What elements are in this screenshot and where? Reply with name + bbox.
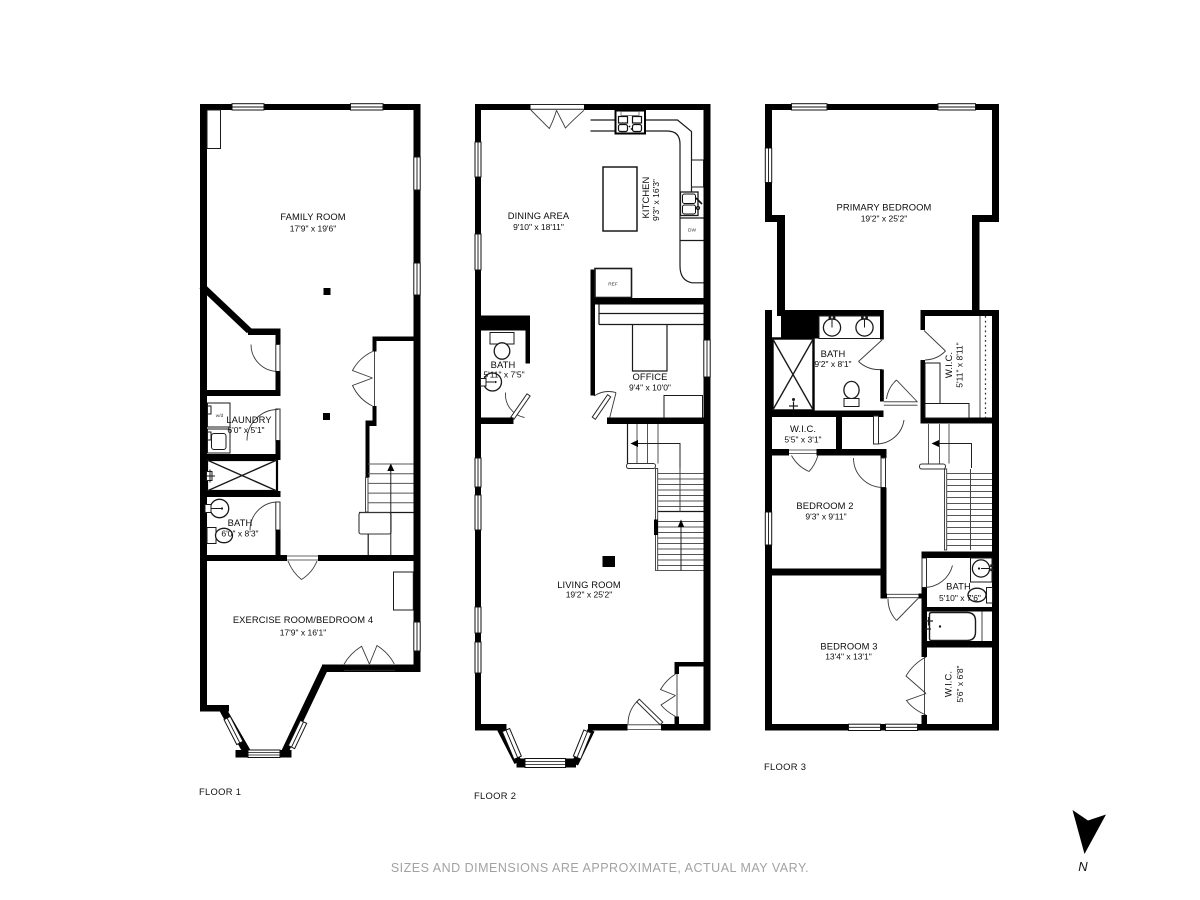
svg-text:EXERCISE ROOM/BEDROOM 4: EXERCISE ROOM/BEDROOM 4 [233, 614, 373, 625]
svg-text:BEDROOM 2: BEDROOM 2 [796, 500, 853, 511]
svg-text:FLOOR 2: FLOOR 2 [474, 790, 516, 801]
svg-text:FLOOR 1: FLOOR 1 [199, 786, 241, 797]
svg-text:9'3" x 9'11": 9'3" x 9'11" [805, 512, 846, 522]
svg-text:9'10" x 18'11": 9'10" x 18'11" [513, 222, 564, 232]
svg-text:BATH: BATH [228, 517, 253, 528]
svg-text:19'2" x 25'2": 19'2" x 25'2" [861, 214, 908, 224]
svg-text:OFFICE: OFFICE [633, 371, 668, 382]
svg-text:17'9" x 19'6": 17'9" x 19'6" [290, 224, 337, 234]
svg-text:19'2" x 25'2": 19'2" x 25'2" [566, 590, 613, 600]
svg-text:W.I.C.: W.I.C. [943, 352, 954, 378]
svg-text:9'2" x 8'1": 9'2" x 8'1" [814, 359, 851, 369]
svg-text:13'4" x 13'1": 13'4" x 13'1" [825, 652, 872, 662]
svg-text:FAMILY ROOM: FAMILY ROOM [280, 211, 345, 222]
svg-text:DW: DW [688, 228, 696, 234]
svg-text:5'11" x 7'5": 5'11" x 7'5" [483, 370, 524, 380]
svg-text:PRIMARY BEDROOM: PRIMARY BEDROOM [837, 202, 932, 213]
svg-text:5'6" x 6'8": 5'6" x 6'8" [955, 665, 965, 702]
svg-text:W.I.C.: W.I.C. [790, 423, 816, 434]
svg-text:6'0" x 5'1": 6'0" x 5'1" [227, 425, 264, 435]
svg-text:LAUNDRY: LAUNDRY [226, 414, 272, 425]
svg-text:BATH: BATH [946, 581, 971, 592]
svg-text:KITCHEN: KITCHEN [640, 177, 651, 219]
svg-text:W.I.C.: W.I.C. [943, 671, 954, 697]
svg-text:9'4" x 10'0": 9'4" x 10'0" [629, 383, 671, 393]
svg-text:FLOOR 3: FLOOR 3 [764, 761, 806, 772]
svg-text:6'0" x 8'3": 6'0" x 8'3" [221, 529, 258, 539]
svg-text:w/d: w/d [216, 413, 224, 419]
svg-text:REF: REF [608, 282, 618, 288]
svg-text:5'11" x 8'11": 5'11" x 8'11" [955, 342, 965, 387]
svg-text:5'10" x 7'6": 5'10" x 7'6" [939, 593, 981, 603]
svg-text:DINING AREA: DINING AREA [508, 210, 570, 221]
svg-text:BATH: BATH [491, 359, 516, 370]
svg-text:SIZES AND DIMENSIONS ARE APPRO: SIZES AND DIMENSIONS ARE APPROXIMATE, AC… [391, 861, 809, 875]
svg-text:BATH: BATH [821, 348, 846, 359]
svg-text:BEDROOM 3: BEDROOM 3 [820, 641, 877, 652]
svg-text:N: N [1078, 859, 1088, 874]
svg-text:LIVING ROOM: LIVING ROOM [557, 579, 621, 590]
svg-text:9'3" x 16'3": 9'3" x 16'3" [651, 179, 661, 221]
svg-text:5'5" x 3'1": 5'5" x 3'1" [784, 435, 821, 445]
svg-text:17'9" x 16'1": 17'9" x 16'1" [280, 628, 327, 638]
